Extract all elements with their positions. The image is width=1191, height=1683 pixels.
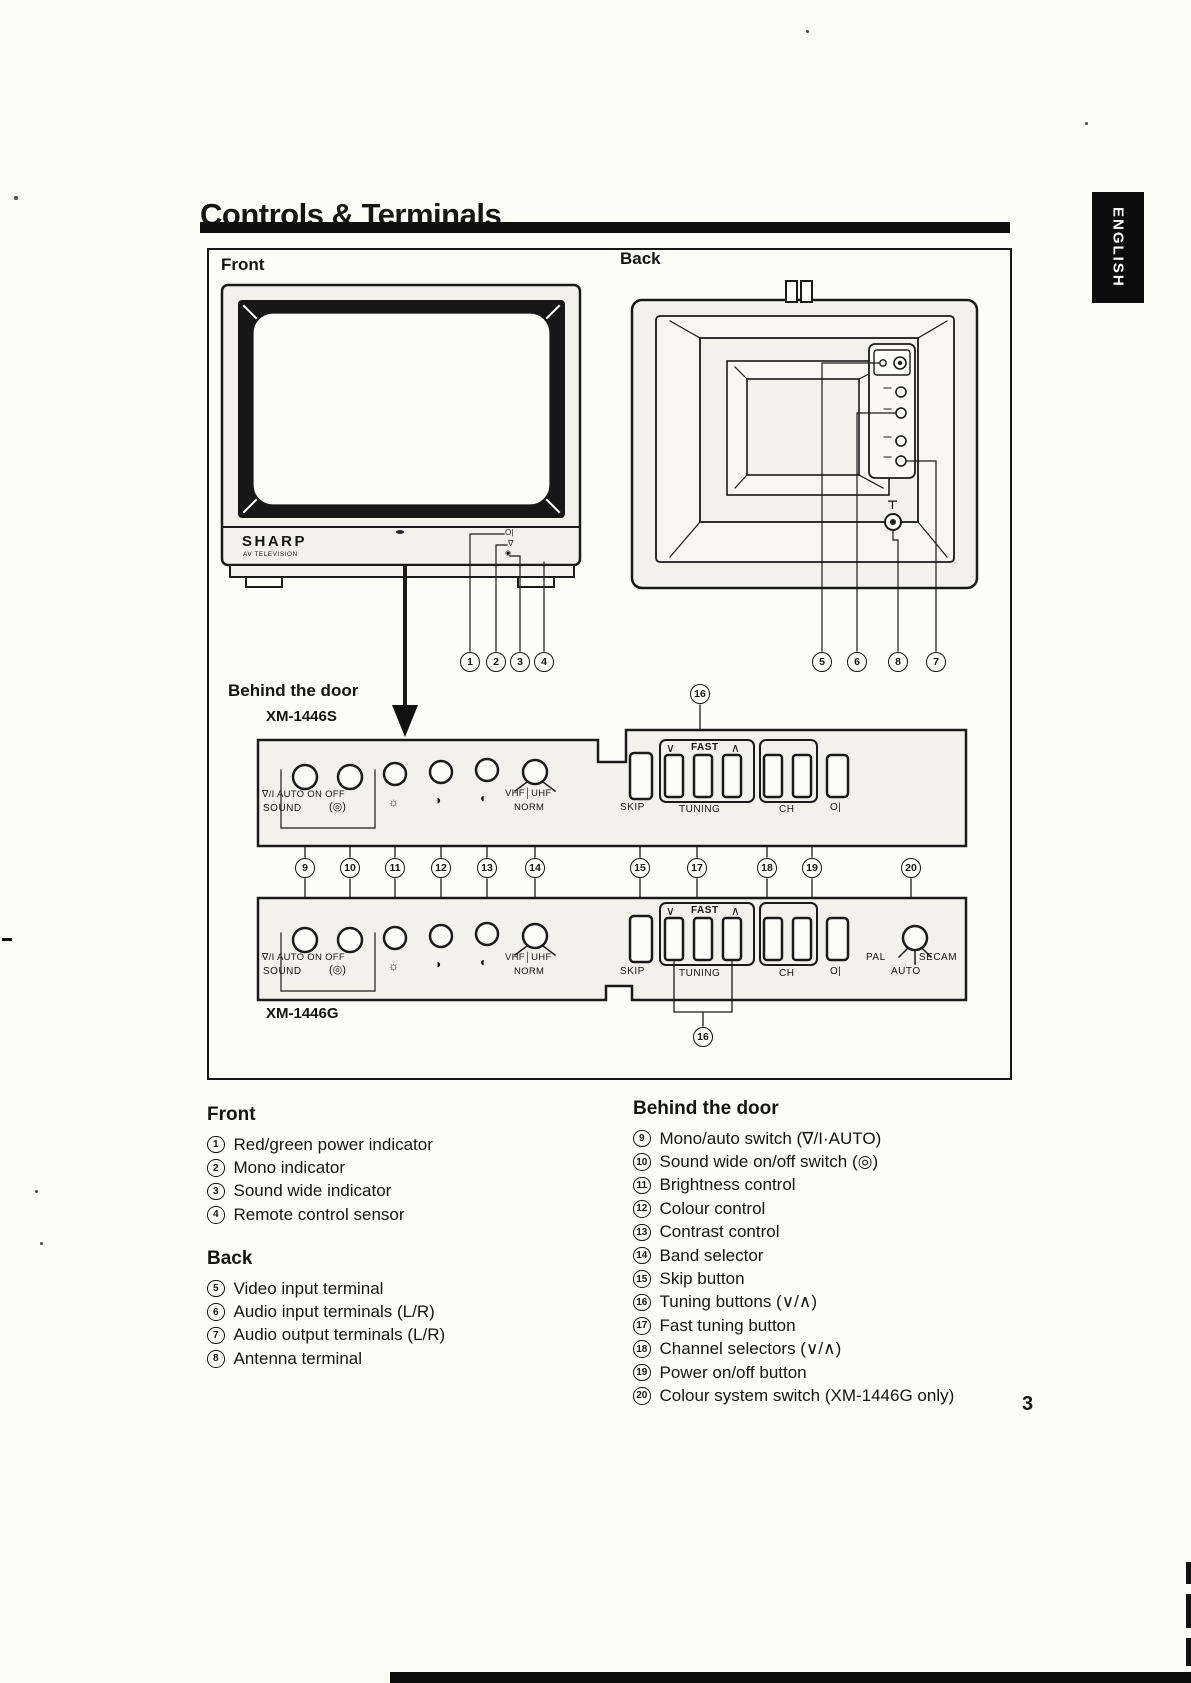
- callout-6: 6: [847, 652, 867, 672]
- callout-20: 20: [901, 858, 921, 878]
- model-label-xm1446s: XM-1446S: [266, 709, 337, 724]
- manual-page: Controls & Terminals ENGLISH: [0, 0, 1191, 1683]
- scan-mark: [2, 938, 12, 941]
- power-label-s: Ο|: [830, 803, 841, 813]
- item-number-badge: 5: [207, 1280, 225, 1298]
- antenna-icon: ⊤: [887, 499, 898, 511]
- item-text: Antenna terminal: [234, 1349, 363, 1369]
- sound-label-g: SOUND: [263, 967, 302, 977]
- callout-5: 5: [812, 652, 832, 672]
- legend-item: 7 Audio output terminals (L/R): [207, 1324, 445, 1347]
- legend-item: 2 Mono indicator: [207, 1156, 433, 1179]
- callout-3: 3: [510, 652, 530, 672]
- legend-item: 4 Remote control sensor: [207, 1203, 433, 1226]
- item-number-badge: 10: [633, 1153, 651, 1171]
- legend-item: 12 Colour control: [633, 1197, 954, 1220]
- tuning-down-icon-g: ∨: [666, 905, 675, 917]
- title-rule: [200, 222, 1010, 233]
- item-text: Fast tuning button: [660, 1316, 796, 1336]
- item-text: Audio output terminals (L/R): [234, 1325, 446, 1345]
- legend-front: Front 1 Red/green power indicator 2 Mono…: [207, 1104, 433, 1227]
- item-text: Contrast control: [660, 1222, 780, 1242]
- colour-icon-s: ◑: [434, 794, 441, 806]
- item-text: Mono/auto switch (∇/I·AUTO): [660, 1129, 882, 1149]
- item-number-badge: 8: [207, 1350, 225, 1368]
- callout-19: 19: [802, 858, 822, 878]
- item-text: Colour system switch (XM-1446G only): [660, 1386, 955, 1406]
- legend-item: 8 Antenna terminal: [207, 1347, 445, 1370]
- callout-10: 10: [340, 858, 360, 878]
- legend-front-heading: Front: [207, 1104, 433, 1126]
- band-norm-label-s: NORM: [514, 803, 544, 813]
- item-text: Sound wide indicator: [234, 1181, 392, 1201]
- legend-item: 18 Channel selectors (∨/∧): [633, 1338, 954, 1361]
- item-text: Tuning buttons (∨/∧): [660, 1292, 818, 1312]
- item-number-badge: 7: [207, 1327, 225, 1345]
- callout-16-top: 16: [690, 684, 710, 704]
- callout-9: 9: [295, 858, 315, 878]
- legend-item: 14 Band selector: [633, 1244, 954, 1267]
- pal-label: PAL: [866, 953, 886, 963]
- mono-indicator-icon: ∇: [508, 540, 513, 548]
- legend-item: 20 Colour system switch (XM-1446G only): [633, 1384, 954, 1407]
- legend-item: 6 Audio input terminals (L/R): [207, 1300, 445, 1323]
- legend-back-heading: Back: [207, 1248, 445, 1270]
- sharp-logo: SHARP: [242, 534, 307, 549]
- scan-mark: [1186, 1594, 1191, 1628]
- callout-15: 15: [630, 858, 650, 878]
- item-text: Power on/off button: [660, 1363, 807, 1383]
- legend-item: 15 Skip button: [633, 1267, 954, 1290]
- back-view-label: Back: [620, 250, 661, 267]
- scan-speck: [40, 1242, 43, 1245]
- legend-back: Back 5 Video input terminal 6 Audio inpu…: [207, 1248, 445, 1371]
- scan-speck: [14, 196, 18, 200]
- language-tab-label: ENGLISH: [1110, 207, 1127, 288]
- band-selector-label-s: VHF│UHF: [505, 789, 552, 799]
- page-number: 3: [1022, 1393, 1033, 1416]
- av-television-label: AV TELEVISION: [243, 552, 298, 559]
- ch-label-s: CH: [779, 805, 794, 815]
- item-number-badge: 15: [633, 1270, 651, 1288]
- item-number-badge: 20: [633, 1387, 651, 1405]
- item-text: Skip button: [660, 1269, 745, 1289]
- item-text: Band selector: [660, 1246, 764, 1266]
- band-selector-label-g: VHF│UHF: [505, 953, 552, 963]
- brightness-icon-g: ☼: [388, 960, 399, 972]
- auto-label: AUTO: [891, 967, 921, 977]
- item-text: Audio input terminals (L/R): [234, 1302, 435, 1322]
- item-number-badge: 3: [207, 1183, 225, 1201]
- legend-behind-list: 9 Mono/auto switch (∇/I·AUTO) 10 Sound w…: [633, 1127, 954, 1408]
- item-text: Red/green power indicator: [234, 1135, 433, 1155]
- secam-label: SECAM: [919, 953, 957, 963]
- callout-14: 14: [525, 858, 545, 878]
- callout-13: 13: [477, 858, 497, 878]
- sound-wide-icon-s: (◎): [329, 802, 346, 813]
- legend-behind-heading: Behind the door: [633, 1098, 954, 1120]
- behind-the-door-label: Behind the door: [228, 682, 358, 699]
- item-number-badge: 4: [207, 1206, 225, 1224]
- fast-label-g: FAST: [691, 906, 719, 916]
- model-label-xm1446g: XM-1446G: [266, 1006, 339, 1021]
- sound-label-s: SOUND: [263, 804, 302, 814]
- legend-item: 16 Tuning buttons (∨/∧): [633, 1291, 954, 1314]
- callout-2: 2: [486, 652, 506, 672]
- item-number-badge: 12: [633, 1200, 651, 1218]
- contrast-icon-s: ◐: [480, 792, 487, 804]
- legend-item: 10 Sound wide on/off switch (◎): [633, 1150, 954, 1173]
- legend-item: 1 Red/green power indicator: [207, 1133, 433, 1156]
- mono-auto-switch-label-s: ∇/I AUTO ON OFF: [262, 790, 345, 800]
- callout-11: 11: [385, 858, 405, 878]
- item-text: Mono indicator: [234, 1158, 346, 1178]
- callout-18: 18: [757, 858, 777, 878]
- mono-auto-switch-label-g: ∇/I AUTO ON OFF: [262, 953, 345, 963]
- callout-7: 7: [926, 652, 946, 672]
- item-text: Brightness control: [660, 1175, 796, 1195]
- scan-mark: [1186, 1638, 1191, 1666]
- callout-12: 12: [431, 858, 451, 878]
- item-number-badge: 6: [207, 1303, 225, 1321]
- legend-front-list: 1 Red/green power indicator 2 Mono indic…: [207, 1133, 433, 1227]
- item-number-badge: 9: [633, 1130, 651, 1148]
- tuning-label-s: TUNING: [679, 805, 720, 815]
- sound-wide-indicator-icon: ◉: [505, 550, 511, 557]
- scan-speck: [35, 1190, 38, 1193]
- legend-item: 17 Fast tuning button: [633, 1314, 954, 1337]
- item-text: Channel selectors (∨/∧): [660, 1339, 842, 1359]
- item-text: Remote control sensor: [234, 1205, 405, 1225]
- legend-item: 13 Contrast control: [633, 1221, 954, 1244]
- power-label-g: Ο|: [830, 967, 841, 977]
- language-tab: ENGLISH: [1092, 192, 1144, 303]
- skip-label-g: SKIP: [620, 967, 645, 977]
- scan-mark: [1186, 1562, 1191, 1584]
- tuning-down-icon-s: ∨: [666, 742, 675, 754]
- ch-label-g: CH: [779, 969, 794, 979]
- contrast-icon-g: ◐: [480, 956, 487, 968]
- legend-item: 3 Sound wide indicator: [207, 1180, 433, 1203]
- item-text: Sound wide on/off switch (◎): [660, 1152, 879, 1172]
- power-indicator-icon: Ο|: [505, 529, 513, 537]
- skip-label-s: SKIP: [620, 803, 645, 813]
- tuning-label-g: TUNING: [679, 969, 720, 979]
- legend-item: 19 Power on/off button: [633, 1361, 954, 1384]
- callout-17: 17: [687, 858, 707, 878]
- item-number-badge: 1: [207, 1136, 225, 1154]
- colour-icon-g: ◑: [434, 958, 441, 970]
- scan-speck: [806, 30, 809, 33]
- callout-8: 8: [888, 652, 908, 672]
- item-text: Video input terminal: [234, 1279, 384, 1299]
- brightness-icon-s: ☼: [388, 796, 399, 808]
- item-text: Colour control: [660, 1199, 766, 1219]
- callout-16-bottom: 16: [693, 1027, 713, 1047]
- legend-item: 5 Video input terminal: [207, 1277, 445, 1300]
- callout-1: 1: [460, 652, 480, 672]
- item-number-badge: 13: [633, 1224, 651, 1242]
- fast-label-s: FAST: [691, 743, 719, 753]
- legend-back-list: 5 Video input terminal 6 Audio input ter…: [207, 1277, 445, 1371]
- legend-item: 11 Brightness control: [633, 1174, 954, 1197]
- front-view-label: Front: [221, 256, 264, 273]
- item-number-badge: 17: [633, 1317, 651, 1335]
- legend-behind-the-door: Behind the door 9 Mono/auto switch (∇/I·…: [633, 1098, 954, 1408]
- legend-item: 9 Mono/auto switch (∇/I·AUTO): [633, 1127, 954, 1150]
- bottom-rule: [390, 1672, 1191, 1683]
- item-number-badge: 11: [633, 1177, 651, 1195]
- item-number-badge: 19: [633, 1364, 651, 1382]
- item-number-badge: 18: [633, 1340, 651, 1358]
- tuning-up-icon-s: ∧: [731, 742, 740, 754]
- sound-wide-icon-g: (◎): [329, 965, 346, 976]
- item-number-badge: 16: [633, 1294, 651, 1312]
- item-number-badge: 2: [207, 1159, 225, 1177]
- band-norm-label-g: NORM: [514, 967, 544, 977]
- scan-speck: [1085, 122, 1088, 125]
- tuning-up-icon-g: ∧: [731, 905, 740, 917]
- item-number-badge: 14: [633, 1247, 651, 1265]
- callout-4: 4: [534, 652, 554, 672]
